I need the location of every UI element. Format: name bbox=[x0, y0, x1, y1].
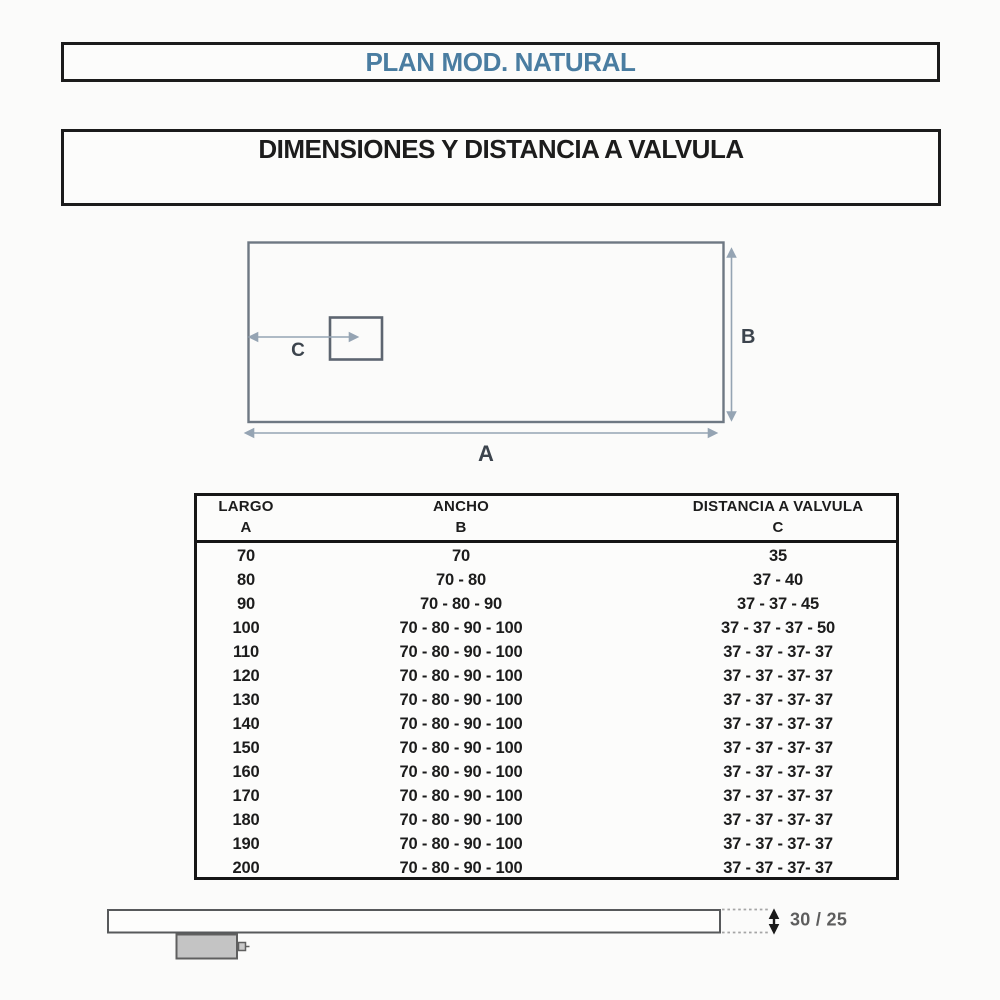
svg-text:B: B bbox=[741, 326, 755, 348]
svg-text:A: A bbox=[478, 441, 494, 466]
svg-text:30 / 25: 30 / 25 bbox=[790, 910, 847, 930]
svg-text:C: C bbox=[291, 340, 305, 361]
